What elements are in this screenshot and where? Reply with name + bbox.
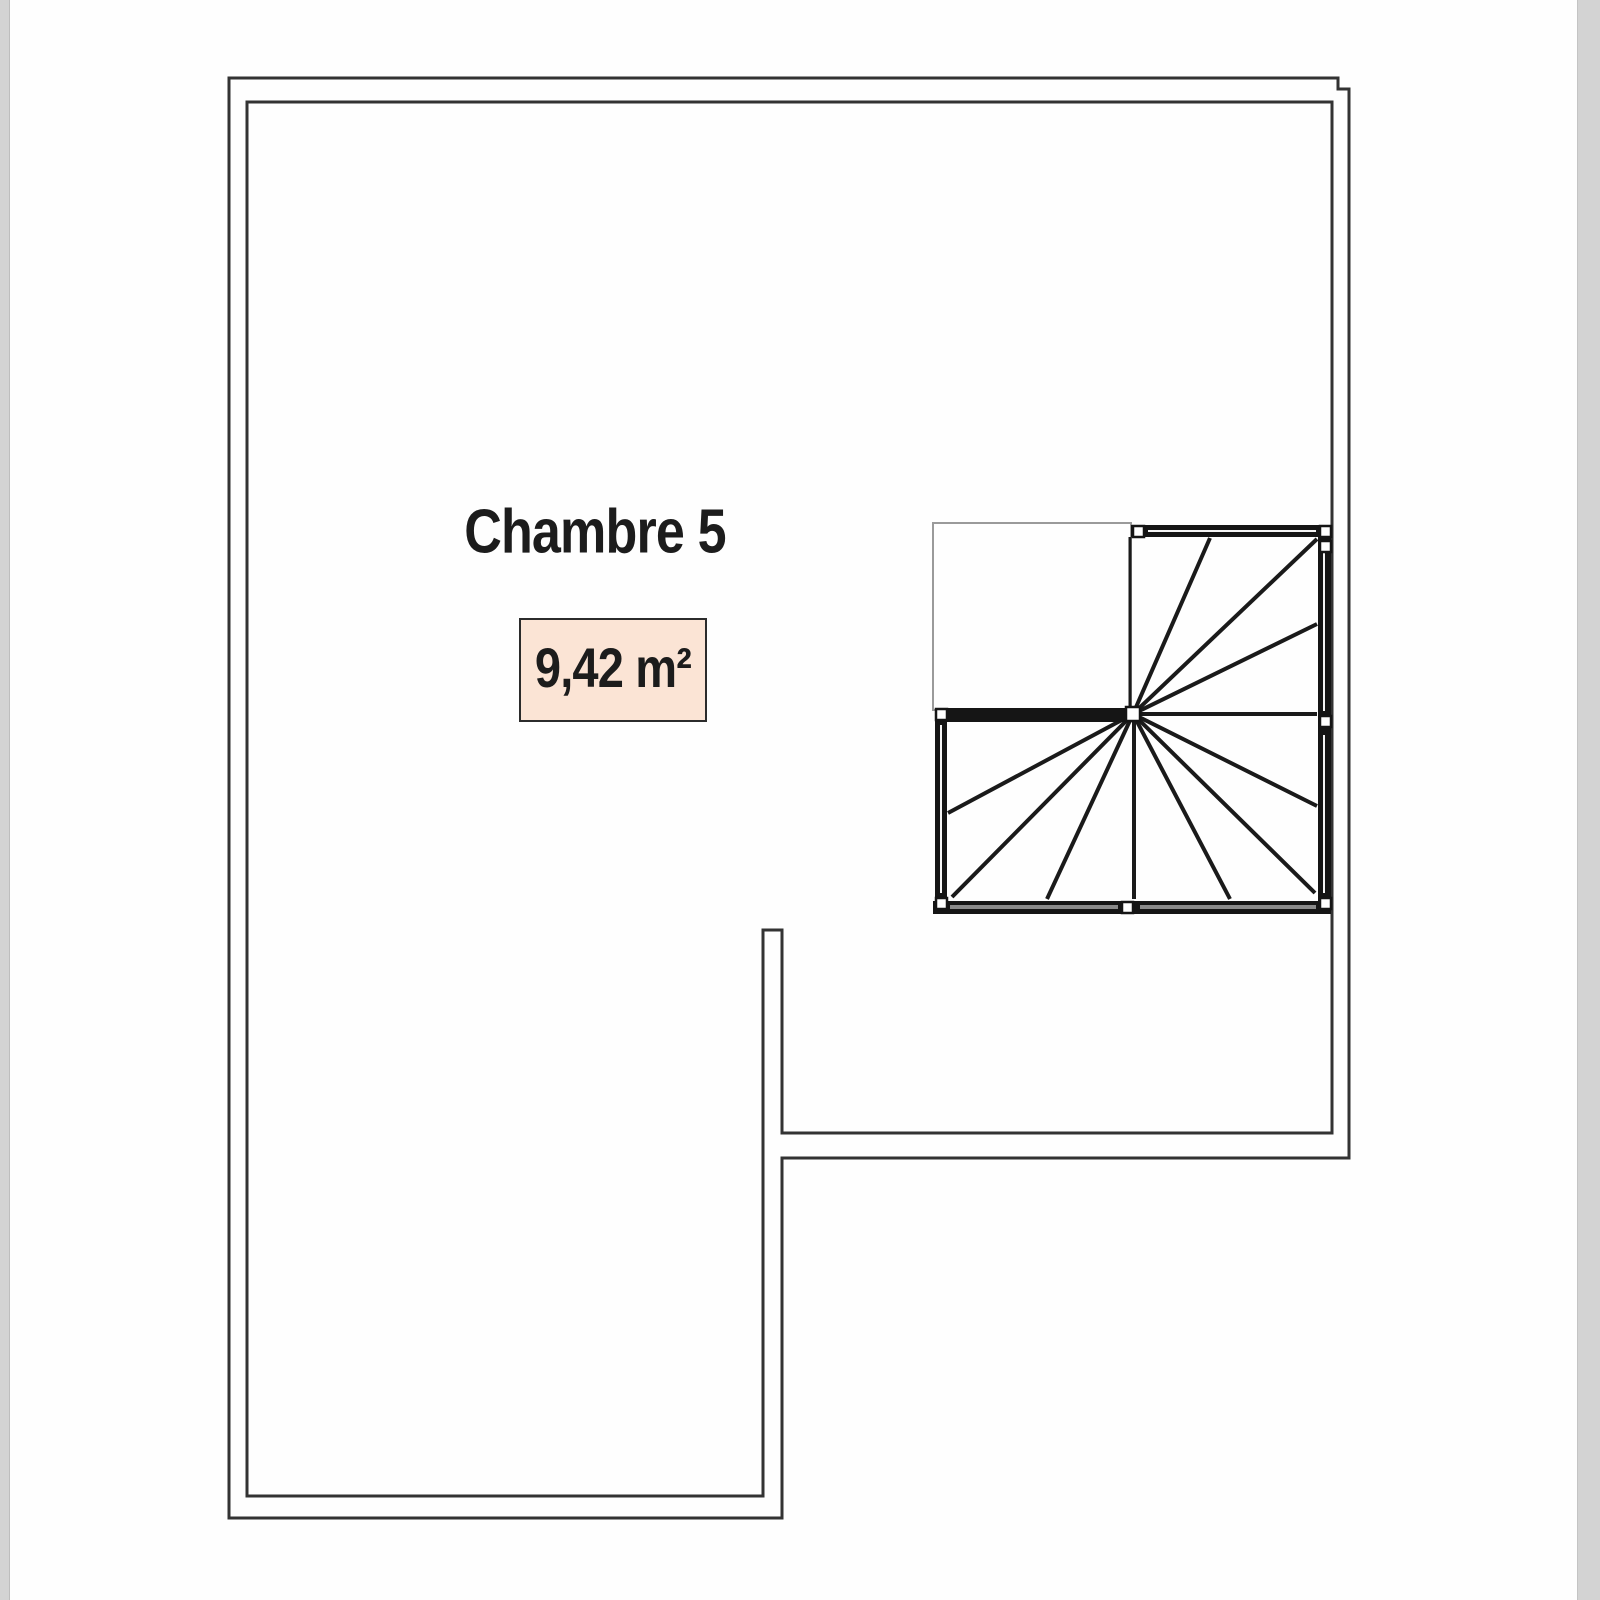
area-value: 9,42 m²	[535, 640, 691, 700]
floor-plan-page: Chambre 5 9,42 m²	[0, 0, 1600, 1600]
stair-wall-mid	[935, 708, 1128, 722]
stair-newel-cap	[1126, 707, 1140, 721]
tread-line	[948, 714, 1133, 813]
wall-cap	[1320, 526, 1331, 537]
stair-landing-outline	[933, 523, 1131, 710]
floor-plan-drawing	[0, 0, 1600, 1600]
wall-cap	[936, 898, 947, 909]
wall-stripe	[950, 905, 1118, 909]
room-name-label: Chambre 5	[464, 497, 726, 568]
wall-cap	[1320, 898, 1331, 909]
tread-line	[952, 714, 1133, 897]
tread-line	[1133, 624, 1317, 714]
wall-cap	[936, 709, 947, 720]
wall-stripe	[1140, 905, 1316, 909]
tread-line	[1133, 714, 1230, 899]
outer-wall-boundary	[229, 78, 1349, 1518]
wall-cap	[1122, 902, 1133, 913]
wall-stripe	[940, 725, 942, 893]
tread-line	[1133, 714, 1317, 806]
wall-cap	[1320, 541, 1331, 552]
inner-wall-boundary	[247, 102, 1332, 1496]
wall-stripe	[1148, 530, 1316, 532]
wall-cap	[1133, 526, 1144, 537]
tread-line	[1133, 714, 1315, 893]
wall-stripe	[1323, 543, 1325, 711]
area-badge: 9,42 m²	[519, 618, 707, 722]
tread-line	[1047, 714, 1133, 899]
wall-cap	[1320, 716, 1331, 727]
tread-line	[1133, 538, 1210, 714]
wall-stripe	[1323, 735, 1325, 893]
tread-line	[1133, 539, 1317, 714]
